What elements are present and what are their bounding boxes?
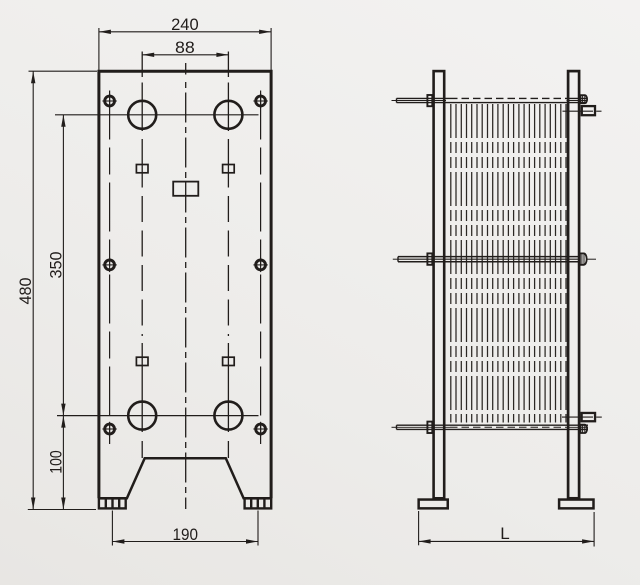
svg-text:190: 190 — [173, 525, 199, 544]
svg-text:240: 240 — [171, 15, 199, 34]
svg-text:L: L — [500, 524, 509, 543]
svg-text:100: 100 — [47, 450, 66, 474]
svg-text:480: 480 — [16, 278, 35, 305]
svg-text:88: 88 — [175, 38, 195, 57]
svg-text:350: 350 — [46, 252, 65, 279]
